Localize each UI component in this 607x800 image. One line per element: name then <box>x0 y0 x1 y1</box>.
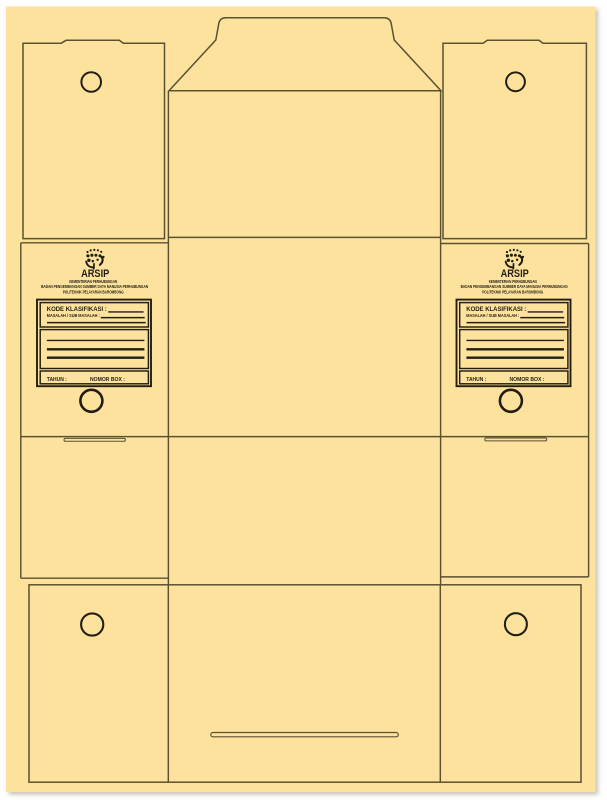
svg-text:TAHUN :: TAHUN : <box>466 377 486 383</box>
svg-text:TAHUN :: TAHUN : <box>47 377 67 383</box>
svg-text:BADAN PENGEMBANGAN SUMBER DAYA: BADAN PENGEMBANGAN SUMBER DAYA MANUSIA P… <box>41 284 148 289</box>
svg-text:BADAN PENGEMBANGAN SUMBER DAYA: BADAN PENGEMBANGAN SUMBER DAYA MANUSIA P… <box>461 284 568 289</box>
svg-text:NOMOR BOX :: NOMOR BOX : <box>510 377 545 383</box>
svg-text:POLITEKNIK PELAYARAN BAROMBONG: POLITEKNIK PELAYARAN BAROMBONG <box>482 290 543 295</box>
svg-text:MASALAH / SUB MASALAH :: MASALAH / SUB MASALAH : <box>47 313 100 318</box>
svg-text:NOMOR BOX :: NOMOR BOX : <box>90 377 125 383</box>
svg-text:MASALAH / SUB MASALAH :: MASALAH / SUB MASALAH : <box>466 313 519 318</box>
svg-text:POLITEKNIK PELAYARAN BAROMBONG: POLITEKNIK PELAYARAN BAROMBONG <box>63 290 124 295</box>
